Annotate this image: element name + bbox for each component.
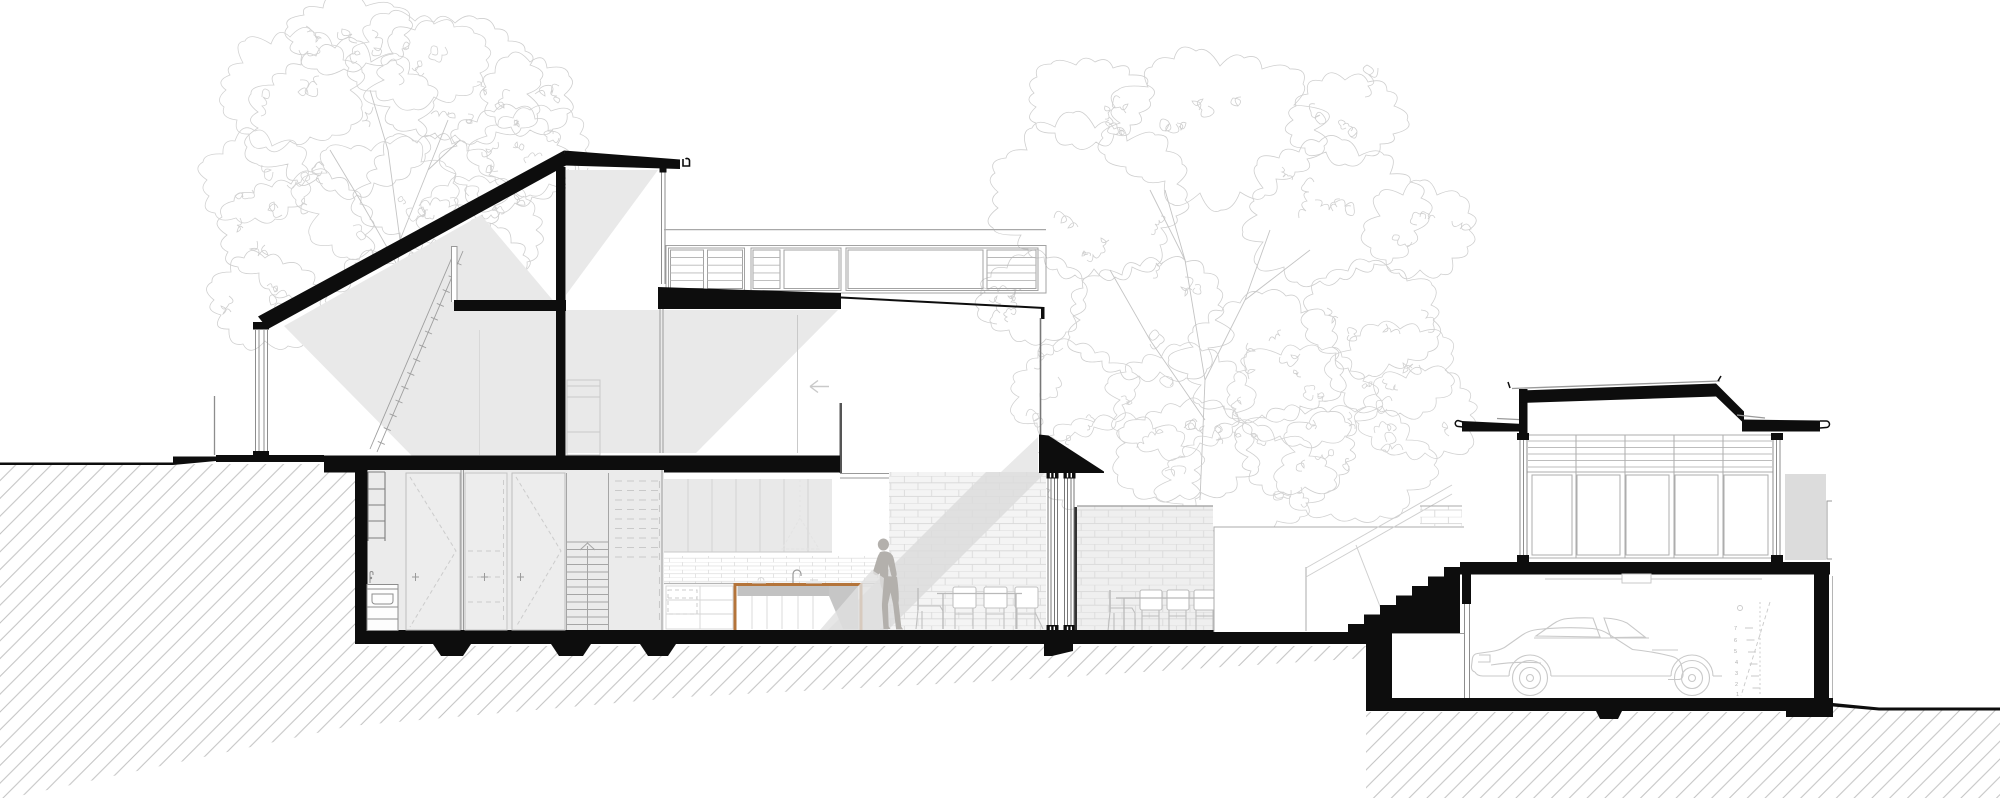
svg-text:2: 2 [1735, 682, 1738, 688]
svg-text:6: 6 [1734, 638, 1737, 644]
svg-text:4: 4 [1735, 660, 1738, 666]
svg-text:1: 1 [1736, 692, 1739, 698]
svg-text:7: 7 [1734, 626, 1737, 632]
svg-text:3: 3 [1735, 671, 1738, 677]
svg-text:5: 5 [1734, 649, 1737, 655]
